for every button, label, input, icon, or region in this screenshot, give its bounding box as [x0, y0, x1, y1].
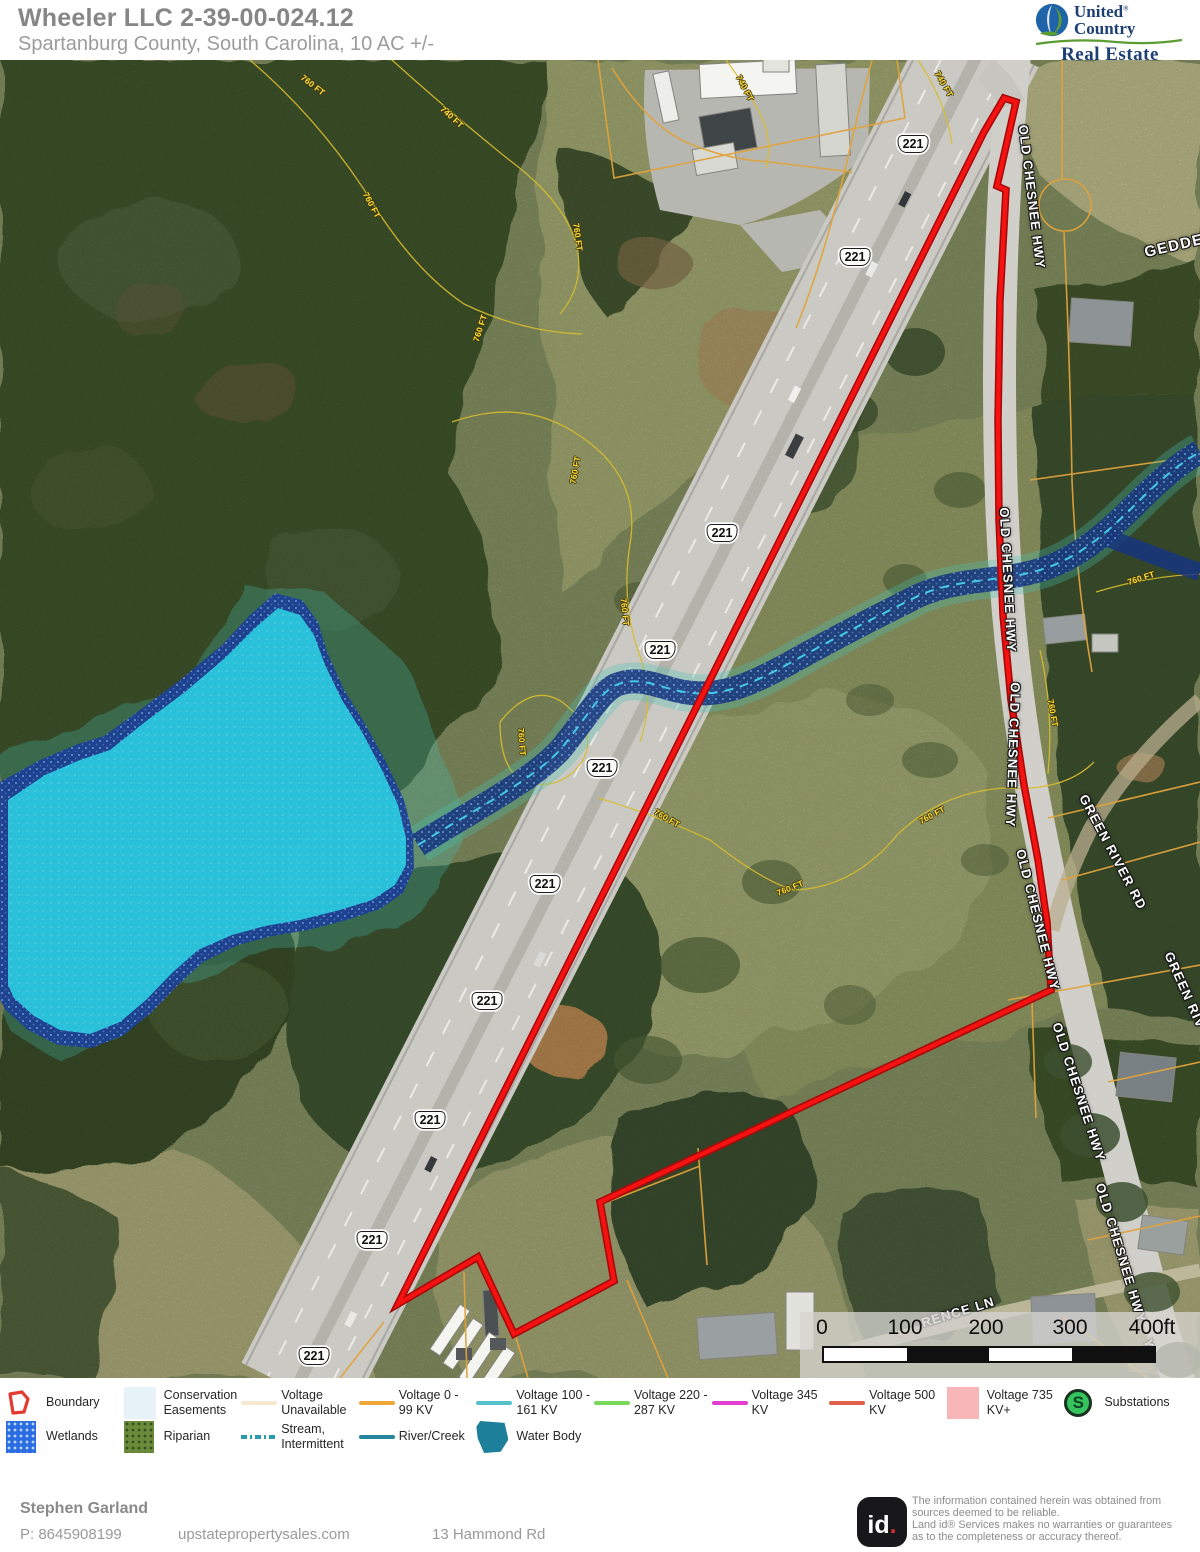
river-creek-swatch	[359, 1435, 395, 1439]
legend-item-voltage-100-161-kv: Voltage 100 - 161 KV	[476, 1386, 594, 1420]
voltage-500-kv-swatch	[829, 1401, 865, 1405]
route-221-shield: 221	[530, 875, 561, 893]
legend-row-2: WetlandsRiparianStream, IntermittentRive…	[6, 1420, 1200, 1454]
legend-item-voltage-345-kv: Voltage 345 KV	[712, 1386, 830, 1420]
legend-label: Stream, Intermittent	[281, 1422, 357, 1453]
agent-address: 13 Hammond Rd	[432, 1526, 545, 1543]
scale-segment	[1072, 1348, 1155, 1361]
legend-label: Voltage 345 KV	[752, 1388, 828, 1419]
header: Wheeler LLC 2-39-00-024.12 Spartanburg C…	[0, 0, 1200, 60]
riparian-swatch	[124, 1421, 154, 1453]
legend-item-water-body: Water Body	[476, 1420, 594, 1454]
legend-label: Conservation Easements	[164, 1388, 240, 1419]
legend-item-voltage-220-287-kv: Voltage 220 - 287 KV	[594, 1386, 712, 1420]
land-id-logo: id.	[857, 1497, 907, 1547]
globe-leaf-icon	[1034, 2, 1072, 40]
route-221-shield: 221	[645, 641, 676, 659]
scale-tick-0: 0	[816, 1316, 828, 1340]
voltage-0-99-kv-icon	[359, 1401, 399, 1405]
disclaimer-line: Land id® Services makes no warranties or…	[912, 1519, 1196, 1531]
wetlands-swatch	[6, 1421, 36, 1453]
legend-label: Voltage 0 - 99 KV	[399, 1388, 475, 1419]
conservation-easements-swatch	[124, 1387, 156, 1419]
footer: Stephen Garland P: 8645908199 upstatepro…	[0, 1490, 1200, 1552]
scale-segment	[989, 1348, 1072, 1361]
voltage-unavailable-icon	[241, 1401, 281, 1405]
boundary-icon	[6, 1390, 46, 1416]
scale-tick-400ft: 400ft	[1129, 1316, 1176, 1340]
route-221-shield: 221	[357, 1231, 388, 1249]
brand-name: United® Country	[1074, 4, 1135, 37]
legend-label: Substations	[1104, 1395, 1169, 1410]
contour-label: 760 FT	[516, 728, 528, 757]
route-221-shield: 221	[472, 992, 503, 1010]
legend-item-wetlands: Wetlands	[6, 1420, 124, 1454]
voltage-100-161-kv-swatch	[476, 1401, 512, 1405]
voltage-345-kv-icon	[712, 1401, 752, 1405]
legend-item-boundary: Boundary	[6, 1386, 124, 1420]
legend-label: Voltage Unavailable	[281, 1388, 357, 1419]
legend-item-voltage-0-99-kv: Voltage 0 - 99 KV	[359, 1386, 477, 1420]
route-221-shield: 221	[299, 1347, 330, 1365]
legend-label: Voltage 500 KV	[869, 1388, 945, 1419]
disclaimer-line: sources deemed to be reliable.	[912, 1507, 1196, 1519]
voltage-735-kv-swatch	[947, 1387, 979, 1419]
agent-name: Stephen Garland	[20, 1500, 148, 1518]
legend-label: River/Creek	[399, 1429, 465, 1444]
page-title: Wheeler LLC 2-39-00-024.12	[18, 4, 354, 33]
united-country-logo: United® Country Real Estate	[1034, 2, 1186, 60]
voltage-345-kv-swatch	[712, 1401, 748, 1405]
riparian-icon	[124, 1421, 164, 1453]
scale-segment	[907, 1348, 990, 1361]
scale-tick-300: 300	[1052, 1316, 1087, 1340]
legend-label: Voltage 100 - 161 KV	[516, 1388, 592, 1419]
legend-item-river-creek: River/Creek	[359, 1420, 477, 1454]
scale-bar-segments	[822, 1346, 1156, 1363]
boundary-swatch	[6, 1390, 32, 1416]
scale-tick-200: 200	[968, 1316, 1003, 1340]
scale-bar: 0100200300400ft	[800, 1312, 1200, 1378]
route-221-shield: 221	[840, 248, 871, 266]
page-subtitle: Spartanburg County, South Carolina, 10 A…	[18, 33, 434, 56]
voltage-500-kv-icon	[829, 1401, 869, 1405]
water-body-icon	[476, 1421, 516, 1453]
disclaimer-text: The information contained herein was obt…	[912, 1495, 1196, 1543]
stream-intermittent-swatch	[241, 1435, 277, 1439]
legend-item-stream-intermittent: Stream, Intermittent	[241, 1420, 359, 1454]
legend-label: Voltage 735 KV+	[987, 1388, 1063, 1419]
substations-swatch: S	[1064, 1389, 1092, 1417]
substations-icon: S	[1064, 1389, 1104, 1417]
voltage-220-287-kv-icon	[594, 1401, 634, 1405]
agent-website[interactable]: upstatepropertysales.com	[178, 1526, 350, 1543]
legend-label: Wetlands	[46, 1429, 98, 1444]
agent-phone: P: 8645908199	[20, 1526, 122, 1543]
route-221-shield: 221	[587, 759, 618, 777]
property-aerial-map: 221221221221221221221221221221OLD CHESNE…	[0, 60, 1200, 1378]
route-221-shield: 221	[898, 135, 929, 153]
legend-item-voltage-735-kv: Voltage 735 KV+	[947, 1386, 1065, 1420]
legend-item-conservation-easements: Conservation Easements	[124, 1386, 242, 1420]
route-221-shield: 221	[707, 524, 738, 542]
legend-item-voltage-500-kv: Voltage 500 KV	[829, 1386, 947, 1420]
disclaimer-line: The information contained herein was obt…	[912, 1495, 1196, 1507]
legend-label: Riparian	[164, 1429, 211, 1444]
legend-row-1: BoundaryConservation EasementsVoltage Un…	[6, 1386, 1200, 1420]
legend-label: Voltage 220 - 287 KV	[634, 1388, 710, 1419]
route-221-shield: 221	[415, 1111, 446, 1129]
map-legend: BoundaryConservation EasementsVoltage Un…	[0, 1378, 1200, 1490]
legend-item-voltage-unavailable: Voltage Unavailable	[241, 1386, 359, 1420]
voltage-220-287-kv-swatch	[594, 1401, 630, 1405]
river-creek-icon	[359, 1435, 399, 1439]
scale-tick-100: 100	[887, 1316, 922, 1340]
stream-intermittent-icon	[241, 1435, 281, 1439]
voltage-unavailable-swatch	[241, 1401, 277, 1405]
voltage-0-99-kv-swatch	[359, 1401, 395, 1405]
wetlands-icon	[6, 1421, 46, 1453]
voltage-735-kv-icon	[947, 1387, 987, 1419]
conservation-easements-icon	[124, 1387, 164, 1419]
scale-segment	[824, 1348, 907, 1361]
legend-item-riparian: Riparian	[124, 1420, 242, 1454]
legend-label: Boundary	[46, 1395, 100, 1410]
voltage-100-161-kv-icon	[476, 1401, 516, 1405]
water-body-swatch	[476, 1421, 508, 1453]
legend-label: Water Body	[516, 1429, 581, 1444]
legend-item-substations: SSubstations	[1064, 1386, 1182, 1420]
disclaimer-line: as to the completeness or accuracy there…	[912, 1531, 1196, 1543]
